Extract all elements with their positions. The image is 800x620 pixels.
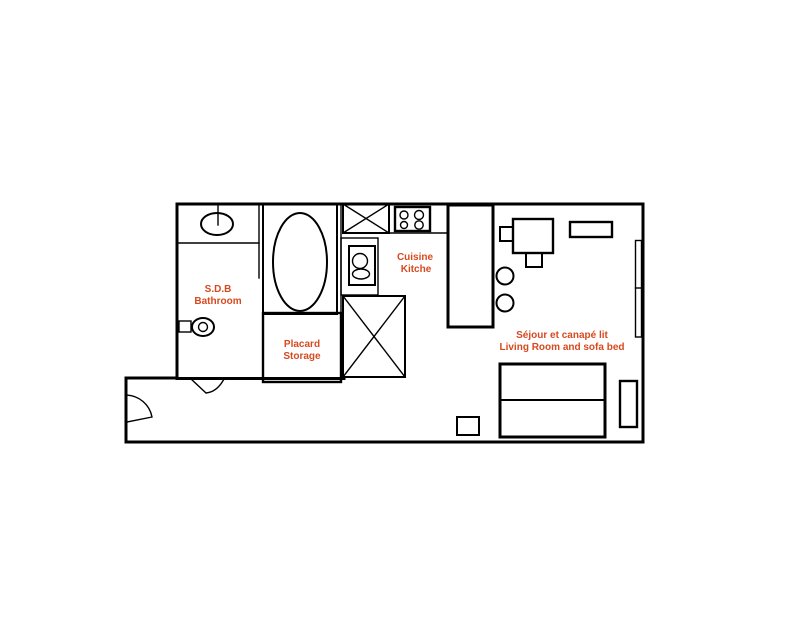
- wall-shelf: [570, 222, 612, 237]
- small-table: [457, 417, 479, 435]
- toilet-tank: [179, 321, 191, 332]
- bathroom-door-arc: [190, 378, 224, 393]
- toilet: [179, 318, 214, 336]
- side-table: [620, 381, 637, 427]
- stool-1: [497, 268, 514, 285]
- kitchen-column: [448, 205, 493, 327]
- window-frame: [636, 241, 642, 338]
- stool-2: [497, 295, 514, 312]
- living-label-fr: Séjour et canapé lit: [516, 330, 608, 341]
- living-label-en: Living Room and sofa bed: [499, 342, 624, 353]
- stove-burner-4: [415, 221, 423, 229]
- stove-burner-3: [401, 222, 408, 229]
- chair-bottom: [526, 253, 542, 267]
- bathroom-label-en: Bathroom: [194, 296, 241, 307]
- floorplan-page: S.D.B Bathroom Placard Storage Cuisine K…: [0, 0, 800, 620]
- storage-label-en: Storage: [283, 351, 321, 362]
- bathroom-label-fr: S.D.B: [205, 284, 232, 295]
- stove-body: [395, 207, 430, 231]
- stove-burner-2: [415, 211, 424, 220]
- stove: [395, 207, 430, 231]
- sofa-bed: [500, 364, 605, 437]
- chair-left: [500, 227, 513, 241]
- toilet-bowl-inner: [199, 323, 208, 332]
- washing-machine-drum: [353, 254, 368, 269]
- dining-table: [513, 219, 553, 253]
- bathroom-sink: [201, 213, 233, 235]
- cabinet-x-bottom: [343, 296, 405, 377]
- washing-machine-door: [353, 269, 370, 279]
- entrance-door-arc: [126, 395, 152, 422]
- kitchen-label-en: Kitche: [401, 264, 432, 275]
- window: [636, 241, 642, 338]
- toilet-bowl: [192, 318, 214, 336]
- kitchen-label-fr: Cuisine: [397, 252, 434, 263]
- bathtub-rim: [263, 204, 337, 314]
- stove-burner-1: [400, 211, 408, 219]
- storage-label-fr: Placard: [284, 339, 320, 350]
- bathtub: [263, 204, 337, 314]
- floorplan: S.D.B Bathroom Placard Storage Cuisine K…: [0, 0, 800, 620]
- bathtub-basin: [273, 213, 327, 311]
- cabinet-x-top: [343, 204, 389, 233]
- washing-machine: [349, 246, 375, 285]
